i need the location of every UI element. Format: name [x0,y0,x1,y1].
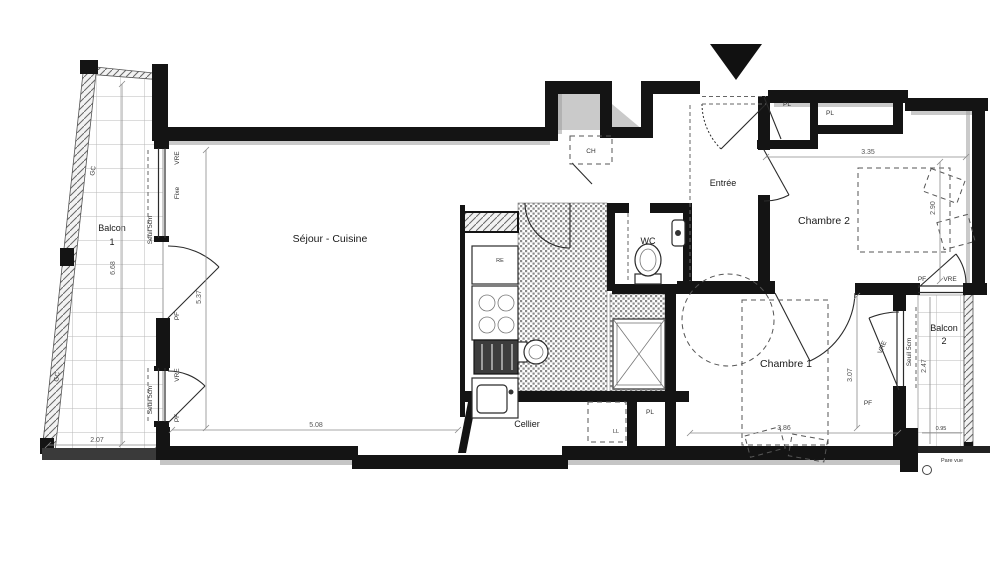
pl-label-2: PL [826,110,834,117]
pf-label-2: PF [174,414,181,422]
pl-label-1: PL [783,101,791,108]
dim-sejour-width: 5.08 [309,422,323,429]
seuil-label-2: Seuil 5cm [147,386,154,415]
dim-chambre2-width: 3.35 [861,149,875,156]
dim-balcon1-width: 2.07 [90,437,104,444]
entrance-arrow [710,44,762,80]
fixe-label: Fixe [174,186,181,199]
entrance-marker [702,44,766,104]
fridge [472,246,518,284]
window-chambre2-balcony [918,286,963,293]
washbasin [518,340,548,364]
dim-sejour-length: 5.37 [196,290,203,304]
pf-label-1: PF [174,312,181,320]
room-label-entree: Entrée [710,178,737,188]
dim-chambre2-length: 2.90 [930,201,937,215]
door-chambre1 [775,293,855,361]
wc: WC [635,220,685,284]
dim-chambre1-length: 3.07 [847,368,854,382]
washer-label: LL [613,429,619,435]
cooktop [472,286,518,340]
pl-label-3: PL [646,409,654,416]
dim-chambre1-width: 3.86 [777,425,791,432]
floor-plan: Balcon 1 GC GC 6.68 2.07 Balcon 2 Pare v… [0,0,1006,567]
room-label-balcon2-num: 2 [941,336,946,346]
window-chambre1 [897,311,904,386]
dim-balcon1-length: 6.68 [110,261,117,275]
room-label-balcon1-num: 1 [109,237,114,247]
kitchen-sink [472,378,518,418]
dim-balcon2-width: 0.95 [936,426,947,432]
room-label-balcon2: Balcon [930,323,958,333]
washer-box [588,402,626,442]
seuil-label-3: Seuil 5cm [906,338,913,367]
room-label-cellier: Cellier [514,419,540,429]
room-label-chambre2: Chambre 2 [798,215,850,227]
room-label-sejour: Séjour - Cuisine [293,233,368,245]
room-label-chambre1: Chambre 1 [760,358,812,370]
wc-sink [672,220,685,246]
door-entrance [702,104,766,149]
kitchen-cabinet [464,212,518,232]
bed-chambre1 [742,300,828,445]
fridge-label: RE [496,258,504,264]
door-sejour-balcony-1 [168,246,219,318]
balcony-2-railing [964,290,973,448]
pf-label-3: PF [864,400,872,407]
door-ch-flap [572,163,592,184]
pare-vue-label: Pare vue [941,458,963,464]
ch-label: CH [586,148,596,155]
room-label-wc: WC [641,236,656,246]
balcony-2: Balcon 2 Pare vue 2.47 0.95 Seuil 5cm [906,286,990,475]
pf-label-4: PF [918,276,926,283]
pare-vue-screen [914,446,990,453]
vre-label-2: VRE [174,368,181,382]
dim-balcon2-length: 2.47 [921,359,928,373]
vre-label-1: VRE [174,151,181,165]
pillow-chambre2 [923,169,965,204]
toilet [635,244,661,284]
oven [474,340,518,374]
vre-label-4: VRE [943,276,957,283]
door-chambre2 [764,150,789,201]
bathtub [613,319,665,389]
kitchen: RE [464,212,518,418]
seuil-label-1: Seuil 5cm [147,216,154,245]
